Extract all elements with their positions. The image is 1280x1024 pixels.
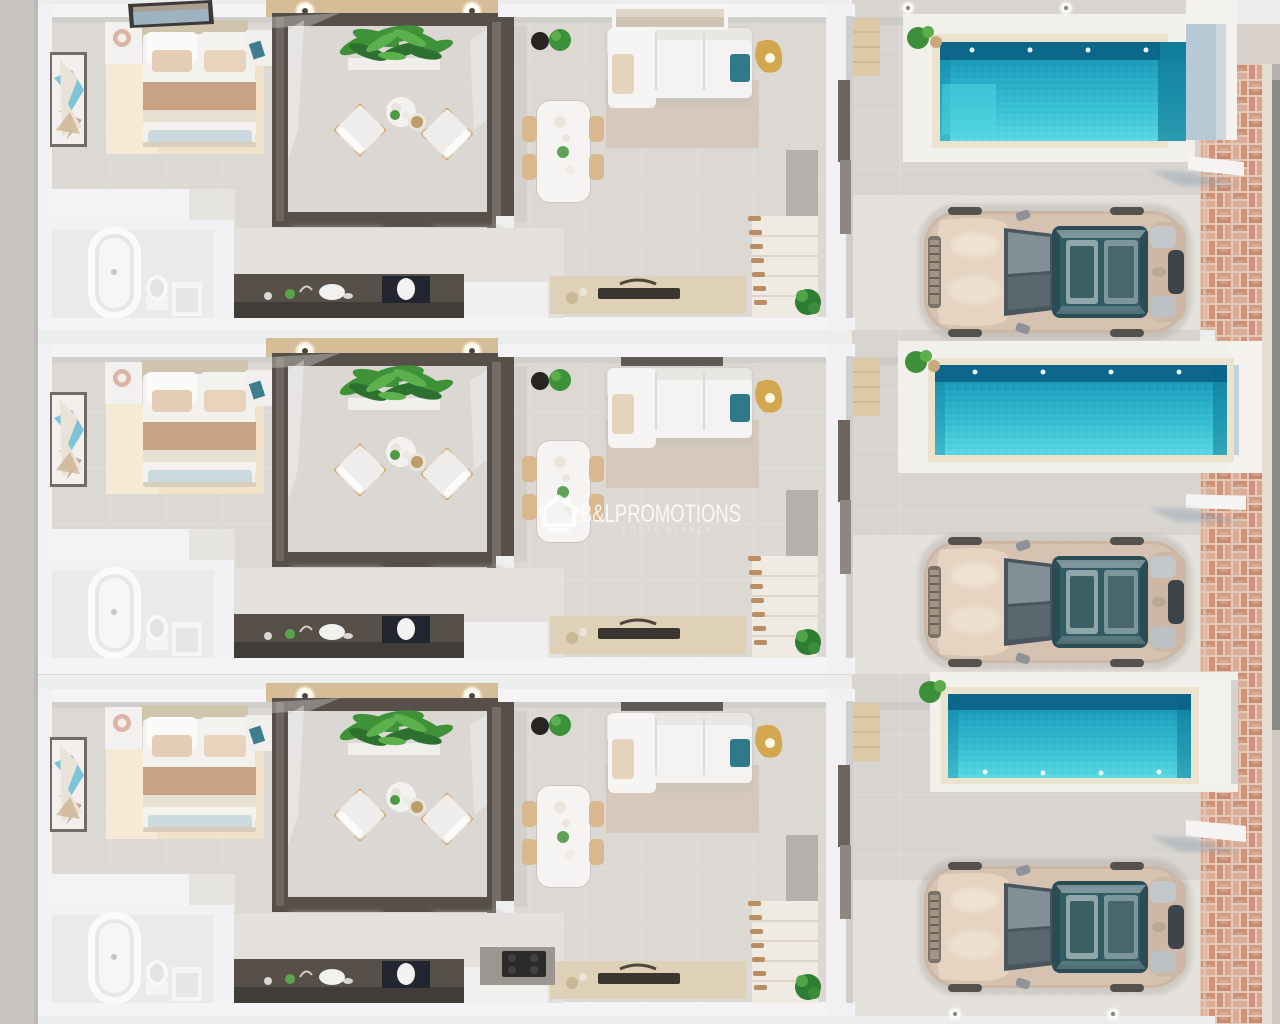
svg-text:B&LPROMOTIONS: B&LPROMOTIONS	[580, 500, 741, 528]
svg-text:COSTA BLANCA: COSTA BLANCA	[622, 525, 714, 535]
